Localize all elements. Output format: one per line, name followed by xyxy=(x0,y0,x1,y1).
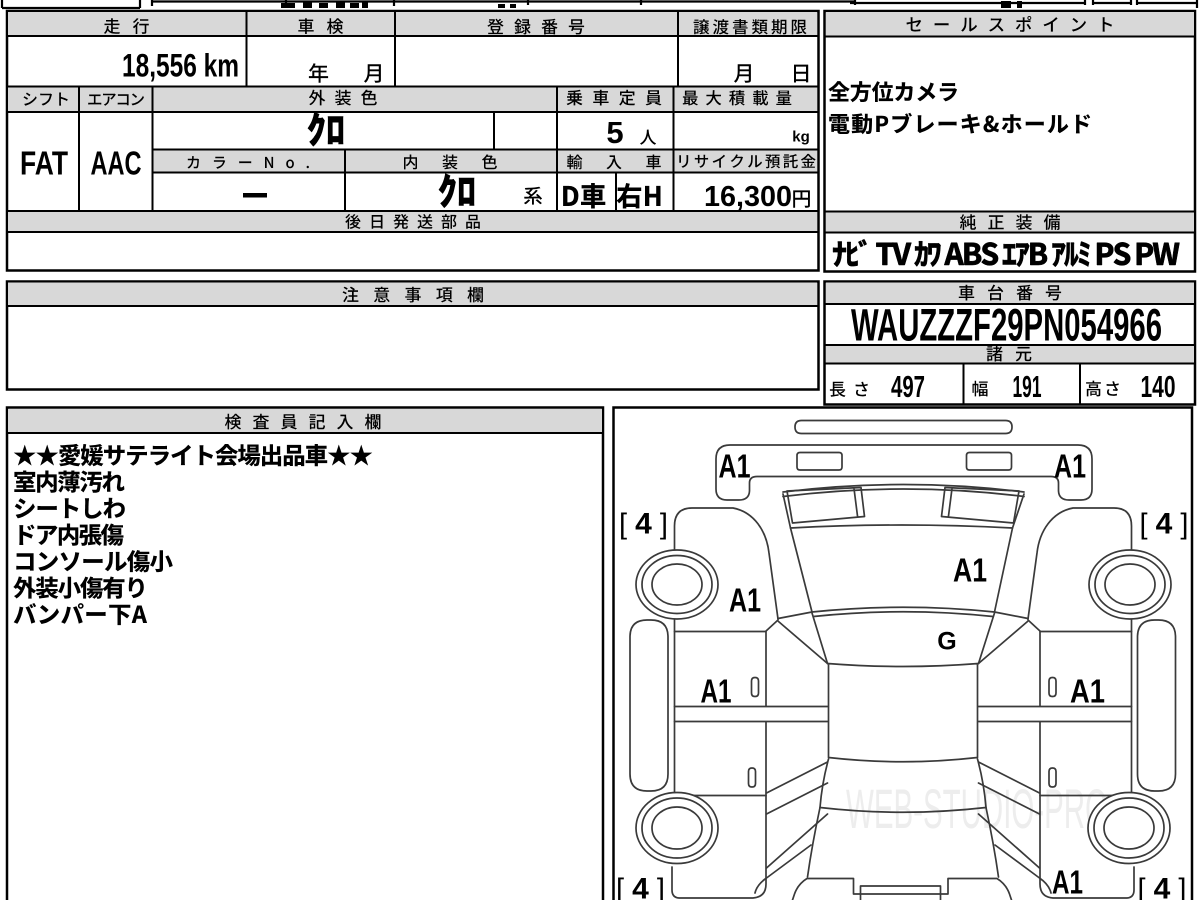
svg-text:[ 4 ]: [ 4 ] xyxy=(1140,508,1189,541)
svg-text:A1: A1 xyxy=(719,448,751,485)
svg-text:A1: A1 xyxy=(953,552,987,589)
svg-text:497: 497 xyxy=(891,369,925,404)
svg-text:A1: A1 xyxy=(1052,864,1083,900)
svg-text:[ 4 ]: [ 4 ] xyxy=(1138,873,1187,900)
svg-text:191: 191 xyxy=(1013,369,1042,404)
svg-text:FAT: FAT xyxy=(20,145,68,182)
svg-text:A1: A1 xyxy=(701,673,732,710)
svg-text:kg: kg xyxy=(792,129,810,146)
svg-text:A1: A1 xyxy=(1054,448,1086,485)
svg-text:16,300: 16,300 xyxy=(704,181,792,213)
svg-text:A1: A1 xyxy=(1070,673,1105,710)
svg-text:G: G xyxy=(937,628,956,656)
svg-text:[ 4 ]: [ 4 ] xyxy=(616,873,665,900)
svg-text:A1: A1 xyxy=(729,582,761,619)
svg-text:5: 5 xyxy=(606,115,623,150)
svg-text:[ 4 ]: [ 4 ] xyxy=(619,508,668,541)
svg-text:WAUZZZF29PN054966: WAUZZZF29PN054966 xyxy=(851,300,1162,351)
svg-text:140: 140 xyxy=(1141,369,1176,404)
svg-text:18,556 km: 18,556 km xyxy=(122,48,239,84)
svg-text:AAC: AAC xyxy=(91,145,142,182)
